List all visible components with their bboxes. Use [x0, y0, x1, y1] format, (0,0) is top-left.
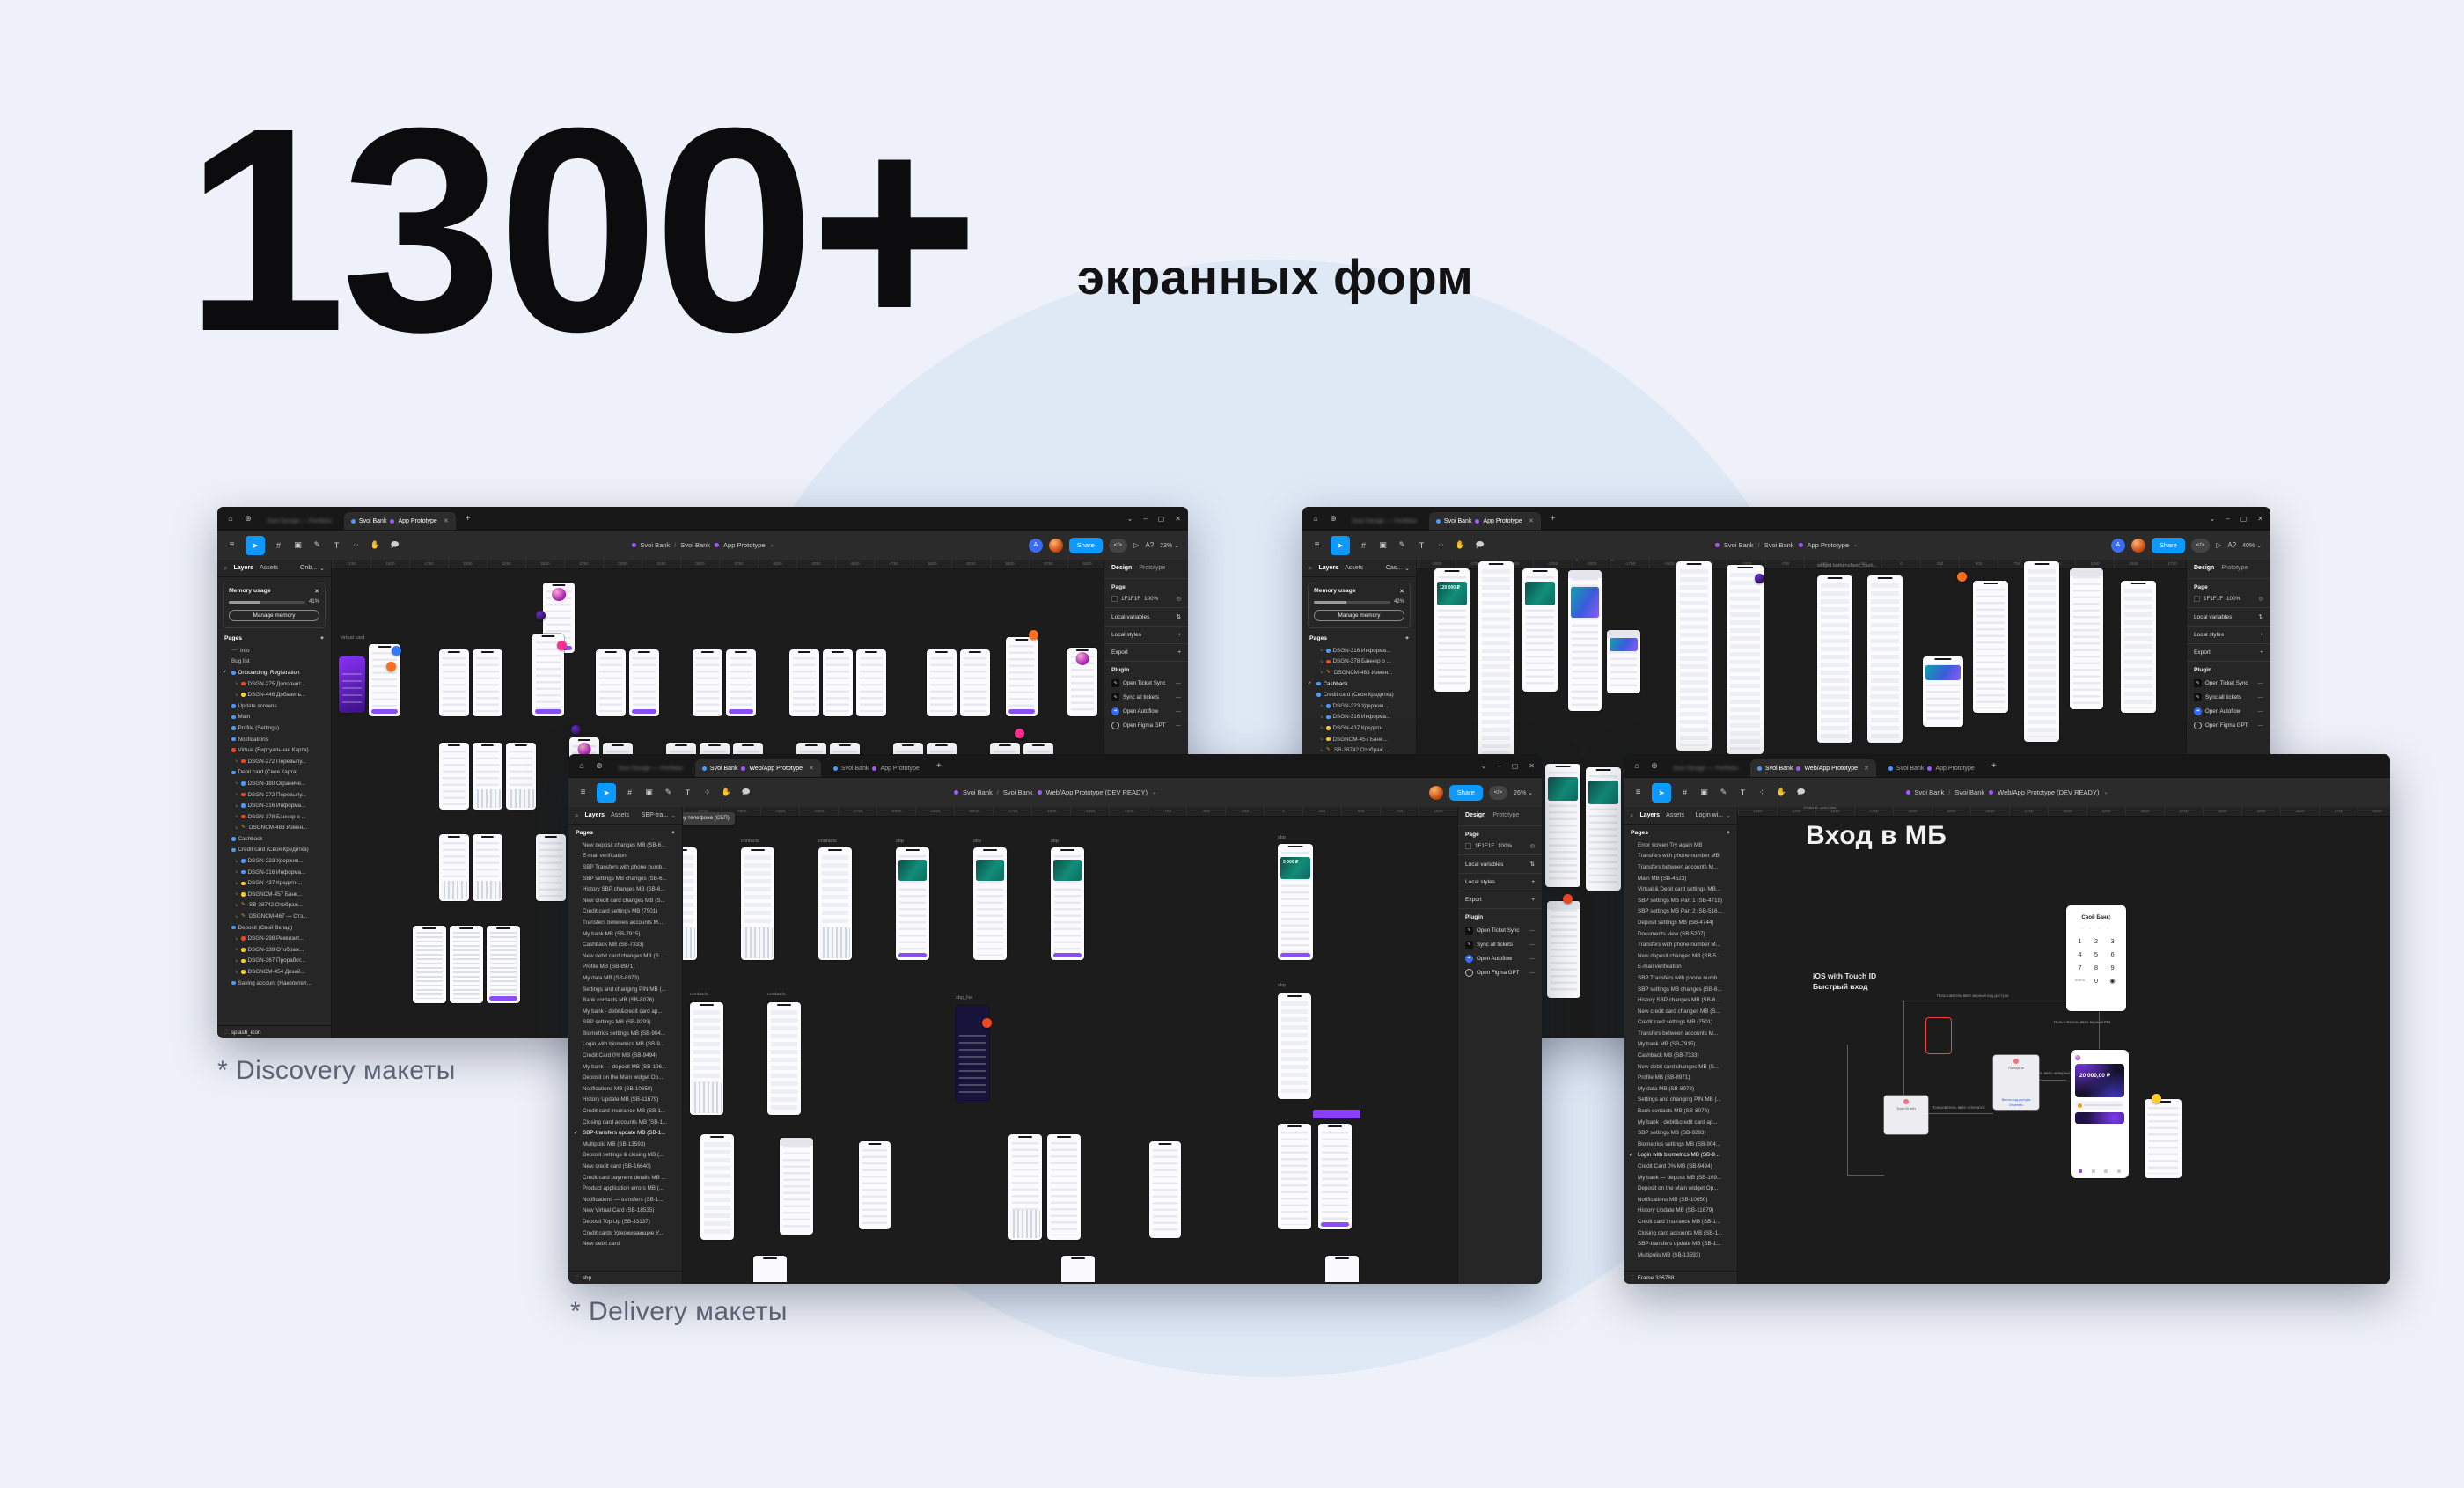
- actions-tool[interactable]: ⁘: [1435, 540, 1447, 550]
- phone-frame[interactable]: [818, 847, 852, 960]
- phone-frame[interactable]: [683, 847, 697, 960]
- plugin-remove-icon[interactable]: —: [2258, 708, 2263, 715]
- page-row[interactable]: Cashback MB (SB-7333): [1624, 1050, 1737, 1061]
- page-row[interactable]: Saving account (Накопител...: [217, 978, 331, 989]
- page-row[interactable]: ↳DSGN-316 Информа...: [217, 800, 331, 811]
- main-screen-phone[interactable]: 20 000,00 ₽: [2071, 1050, 2129, 1178]
- page-row[interactable]: E-mail verification: [1624, 962, 1737, 973]
- pen-tool[interactable]: ✎: [312, 540, 323, 550]
- plugin-remove-icon[interactable]: —: [1529, 956, 1535, 962]
- flow-node-link[interactable]: Отменить: [1996, 1103, 2036, 1107]
- page-row[interactable]: Notifications: [217, 734, 331, 745]
- plugin-remove-icon[interactable]: —: [1529, 927, 1535, 934]
- share-button[interactable]: Share: [2152, 538, 2185, 553]
- page-row[interactable]: Credit card settings MB (7501): [1624, 1017, 1737, 1029]
- phone-frame[interactable]: [1586, 767, 1621, 891]
- phone-frame[interactable]: [1051, 847, 1084, 960]
- search-icon[interactable]: ⌕: [575, 811, 578, 820]
- current-page-chip[interactable]: Cas...⌄: [1386, 565, 1410, 572]
- phone-frame[interactable]: [1568, 570, 1602, 711]
- phone-frame[interactable]: [973, 847, 1007, 960]
- add-page-button[interactable]: +: [671, 830, 675, 836]
- page-row[interactable]: Multipolis MB (SB-13593): [1624, 1250, 1737, 1261]
- tab-file-0[interactable]: Svoi BankApp Prototype✕: [344, 512, 456, 530]
- phone-frame[interactable]: [413, 926, 446, 1003]
- close-button[interactable]: ✕: [1529, 762, 1535, 770]
- maximize-button[interactable]: ▢: [1512, 762, 1519, 770]
- tab-portfolio[interactable]: Svoi Design — Portfolio: [1666, 759, 1745, 777]
- tab-prototype[interactable]: Prototype: [1139, 565, 1165, 571]
- page-row[interactable]: Settings and changing PIN MB (...: [568, 984, 682, 995]
- plus-icon[interactable]: +: [1177, 649, 1181, 656]
- tab-layers[interactable]: Layers: [1639, 812, 1660, 818]
- plugin-row[interactable]: ∿Sync all tickets—: [2194, 693, 2263, 701]
- page-row[interactable]: My bank MB (SB-7915): [1624, 1039, 1737, 1051]
- tab-prototype[interactable]: Prototype: [1492, 812, 1519, 818]
- frame-tool[interactable]: #: [1679, 788, 1690, 797]
- selected-layer-row[interactable]: ⁚⁚Frame 336788: [1624, 1271, 1737, 1284]
- page-row[interactable]: ↳DSGN-316 Информа...: [1302, 712, 1416, 723]
- breadcrumb-file[interactable]: Svoi Bank: [1764, 541, 1794, 549]
- tab-close-icon[interactable]: ✕: [809, 765, 814, 772]
- keypad-key[interactable]: 4: [2072, 950, 2088, 958]
- page-row[interactable]: Credit card insurance MB (SB-1...: [1624, 1216, 1737, 1228]
- tab-layers[interactable]: Layers: [233, 565, 253, 571]
- page-row[interactable]: ↳DSGN-339 Отображ...: [217, 944, 331, 956]
- page-row[interactable]: ↳DSGNCM-454 Дизай...: [217, 966, 331, 978]
- page-row[interactable]: New deposit changes MB (SB-6...: [568, 839, 682, 851]
- page-row[interactable]: Deposit settings MB (SB-4744): [1624, 917, 1737, 928]
- page-row[interactable]: My data MB (SB-8973): [568, 972, 682, 984]
- canvas[interactable]: -3750-3500-3250-3000-2750-2500-2250-2000…: [683, 807, 1457, 1284]
- comment-tool[interactable]: 🗩: [740, 786, 752, 800]
- keypad-key[interactable]: 0: [2088, 977, 2105, 985]
- page-row[interactable]: —Info: [217, 645, 331, 656]
- phone-frame[interactable]: [536, 834, 566, 901]
- page-row[interactable]: Credit card insurance MB (SB-1...: [568, 1105, 682, 1117]
- canvas[interactable]: 1000125015001750200022502500275030003250…: [1738, 807, 2390, 1284]
- dev-mode-toggle[interactable]: </>: [2191, 539, 2210, 553]
- page-row[interactable]: ✓Cashback: [1302, 678, 1416, 690]
- page-row[interactable]: New credit card changes MB (S...: [1624, 1006, 1737, 1017]
- page-row[interactable]: ↳DSGN-316 Информа...: [217, 867, 331, 878]
- plugin-row[interactable]: Open Figma GPT—: [2194, 722, 2263, 729]
- page-color-row[interactable]: 1F1F1F100%◎: [1111, 596, 1181, 602]
- shape-tool[interactable]: ▣: [1377, 540, 1389, 550]
- panel-section-row[interactable]: Local styles+: [1111, 632, 1181, 638]
- close-button[interactable]: ✕: [1175, 515, 1181, 523]
- page-row[interactable]: Transfers between accounts M...: [1624, 861, 1737, 873]
- phone-frame[interactable]: [767, 1002, 801, 1115]
- page-row[interactable]: History SBP changes MB (SB-6...: [1624, 994, 1737, 1006]
- phone-frame[interactable]: [1547, 901, 1580, 998]
- minimize-button[interactable]: –: [2226, 515, 2229, 523]
- zoom-chevron-icon[interactable]: ⌄: [1528, 790, 1533, 796]
- color-swatch[interactable]: [2194, 596, 2200, 602]
- pen-tool[interactable]: ✎: [1397, 540, 1408, 550]
- page-row[interactable]: Deposit on the Main widget Op...: [1624, 1183, 1737, 1194]
- phone-frame[interactable]: [856, 649, 886, 716]
- keypad-key[interactable]: 7: [2072, 964, 2088, 971]
- phone-frame[interactable]: [1008, 1134, 1042, 1240]
- tab-portfolio[interactable]: Svoi Design — Portfolio: [611, 759, 690, 777]
- phone-frame[interactable]: [1607, 630, 1640, 693]
- community-icon[interactable]: ⊕: [242, 514, 254, 524]
- current-page-chip[interactable]: SBP-tra...⌄: [642, 812, 676, 819]
- phone-frame[interactable]: [693, 649, 722, 716]
- phone-frame[interactable]: [473, 649, 502, 716]
- breadcrumb-team[interactable]: Svoi Bank: [640, 541, 670, 549]
- tab-portfolio[interactable]: Svoi Design — Portfolio: [1345, 512, 1424, 530]
- new-tab-button[interactable]: +: [461, 514, 475, 524]
- page-row[interactable]: ↳DSGN-446 Добавить...: [217, 689, 331, 700]
- phone-frame[interactable]: [1478, 561, 1514, 773]
- search-icon[interactable]: ⌕: [224, 564, 227, 573]
- phone-frame[interactable]: [960, 649, 990, 716]
- phone-frame[interactable]: [1325, 1256, 1359, 1282]
- phone-frame[interactable]: [741, 847, 774, 960]
- page-row[interactable]: Multipolis MB (SB-13593): [568, 1139, 682, 1150]
- plugin-row[interactable]: ∿Open Ticket Sync—: [2194, 679, 2263, 687]
- page-row[interactable]: New credit card changes MB (S...: [568, 895, 682, 906]
- collaborator-avatar[interactable]: A: [2111, 539, 2125, 553]
- share-button[interactable]: Share: [1069, 538, 1103, 553]
- home-icon[interactable]: ⌂: [1631, 761, 1643, 770]
- plus-icon[interactable]: +: [1177, 632, 1181, 638]
- keypad-key[interactable]: 2: [2088, 937, 2105, 945]
- present-icon[interactable]: ▷: [2216, 541, 2221, 549]
- page-row[interactable]: SBP settings MB changes (SB-6...: [1624, 984, 1737, 995]
- phone-frame[interactable]: [927, 649, 957, 716]
- page-row[interactable]: Deposit (Свой Вклад): [217, 922, 331, 934]
- new-tab-button[interactable]: +: [932, 761, 946, 771]
- nav-icon[interactable]: [2117, 1169, 2121, 1173]
- zoom-chevron-icon[interactable]: ⌄: [2256, 543, 2262, 549]
- phone-frame[interactable]: [753, 1256, 787, 1282]
- phone-frame[interactable]: [506, 743, 536, 810]
- phone-frame[interactable]: [339, 656, 365, 713]
- tab-file-0[interactable]: Svoi BankWeb/App Prototype✕: [1750, 759, 1876, 777]
- page-row[interactable]: Bank contacts MB (SB-8076): [568, 994, 682, 1006]
- phone-frame[interactable]: [2121, 581, 2156, 713]
- tab-close-icon[interactable]: ✕: [444, 517, 449, 524]
- breadcrumb-file[interactable]: Svoi Bank: [1003, 788, 1033, 796]
- phone-frame[interactable]: [439, 743, 469, 810]
- present-icon[interactable]: ▷: [1133, 541, 1139, 549]
- plugin-row[interactable]: ∿Sync all tickets—: [1465, 941, 1535, 949]
- page-row[interactable]: New credit card (SB-16640): [568, 1161, 682, 1172]
- chevron-down-icon[interactable]: ⌄: [1853, 542, 1858, 548]
- plugin-row[interactable]: ➔Open Autoflow—: [1111, 707, 1181, 715]
- page-row[interactable]: ↳DSGN-275 Дополнит...: [217, 678, 331, 690]
- page-row[interactable]: ↳DSGNCM-457 Бане...: [1302, 734, 1416, 745]
- page-row[interactable]: History Update MB (SB-11679): [568, 1095, 682, 1106]
- phone-frame[interactable]: [1006, 637, 1038, 716]
- plugin-remove-icon[interactable]: —: [1529, 970, 1535, 976]
- page-row[interactable]: My bank — deposit MB (SB-109...: [1624, 1172, 1737, 1184]
- plus-icon[interactable]: +: [2260, 649, 2263, 656]
- tab-design[interactable]: Design: [2194, 565, 2214, 571]
- flow-node[interactable]: ПовторитеВвести код доступаОтменить: [1993, 1055, 2039, 1110]
- phone-frame[interactable]: [1867, 575, 1903, 743]
- minimize-button[interactable]: –: [1143, 515, 1147, 523]
- plugin-remove-icon[interactable]: —: [2258, 694, 2263, 700]
- plugin-remove-icon[interactable]: —: [2258, 722, 2263, 729]
- page-row[interactable]: Cashback MB (SB-7333): [568, 939, 682, 950]
- page-color-row[interactable]: 1F1F1F100%◎: [2194, 596, 2263, 602]
- page-row[interactable]: SBP settings MB (SB-9293): [1624, 1127, 1737, 1139]
- chevron-down-icon[interactable]: ⌄: [2103, 789, 2108, 795]
- phone-frame[interactable]: [780, 1138, 813, 1235]
- page-row[interactable]: SBP settings MB changes (SB-6...: [568, 873, 682, 884]
- phone-frame[interactable]: [629, 649, 659, 716]
- page-row[interactable]: Bug list: [217, 656, 331, 668]
- keypad-key[interactable]: 8: [2088, 964, 2105, 971]
- page-row[interactable]: History Update MB (SB-11679): [1624, 1206, 1737, 1217]
- page-row[interactable]: Debit card (Своя Карта): [217, 767, 331, 779]
- share-button[interactable]: Share: [1449, 785, 1483, 801]
- plugin-row[interactable]: Open Figma GPT—: [1465, 969, 1535, 977]
- zoom-level[interactable]: 40% ⌄: [2242, 542, 2262, 549]
- tab-prototype[interactable]: Prototype: [2221, 565, 2248, 571]
- keypad-key[interactable]: 6: [2104, 950, 2121, 958]
- breadcrumb-team[interactable]: Svoi Bank: [1724, 541, 1754, 549]
- collaborator-avatar[interactable]: A: [1029, 539, 1043, 553]
- page-row[interactable]: Bank contacts MB (SB-8076): [1624, 1105, 1737, 1117]
- plugin-remove-icon[interactable]: —: [1529, 942, 1535, 948]
- page-row[interactable]: SBP Transfers with phone numb...: [1624, 972, 1737, 984]
- keypad-key[interactable]: 9: [2104, 964, 2121, 971]
- tab-assets[interactable]: Assets: [260, 565, 278, 571]
- page-row[interactable]: ↳DSGN-272 Перевыпу...: [217, 789, 331, 801]
- chevron-down-icon[interactable]: ⌄: [1152, 789, 1156, 795]
- phone-frame[interactable]: [1067, 648, 1097, 716]
- flow-node[interactable]: [1926, 1018, 1951, 1053]
- page-row[interactable]: ↳DSGN-378 Баннер о ...: [217, 811, 331, 823]
- actions-tool[interactable]: ⁘: [701, 788, 713, 797]
- page-row[interactable]: ↳DSGN-378 Баннер о ...: [1302, 656, 1416, 668]
- page-row[interactable]: Closing card accounts MB (SB-1...: [568, 1117, 682, 1128]
- comment-tool[interactable]: 🗩: [389, 539, 400, 553]
- phone-frame[interactable]: [2024, 561, 2059, 742]
- phone-frame[interactable]: [1061, 1256, 1095, 1282]
- phone-frame[interactable]: [1278, 993, 1311, 1099]
- tab-close-icon[interactable]: ✕: [1529, 517, 1534, 524]
- main-menu-icon[interactable]: ≡: [226, 540, 238, 550]
- page-row[interactable]: Error screen Try again MB: [1624, 839, 1737, 851]
- keypad-key[interactable]: 5: [2088, 950, 2105, 958]
- page-row[interactable]: ↳DSGNCM-457 Банк...: [217, 889, 331, 900]
- plugin-remove-icon[interactable]: —: [2258, 680, 2263, 686]
- shape-tool[interactable]: ▣: [292, 540, 304, 550]
- page-row[interactable]: Product application errors MB (...: [568, 1183, 682, 1194]
- phone-frame[interactable]: [1522, 568, 1558, 692]
- phone-frame[interactable]: [487, 926, 520, 1003]
- phone-frame[interactable]: [859, 1141, 891, 1229]
- page-row[interactable]: Biometrics settings MB (SB-904...: [568, 1028, 682, 1039]
- page-row[interactable]: ↳DSGN-223 Удержив...: [1302, 700, 1416, 712]
- pin-keypad-screen[interactable]: Свой Банк)· · · ·123456789Выйти0◉: [2066, 905, 2126, 1011]
- phone-frame[interactable]: [596, 649, 626, 716]
- page-row[interactable]: Login with biometrics MB (SB-9...: [568, 1039, 682, 1051]
- dropdown-icon[interactable]: ⌄: [1127, 515, 1133, 523]
- page-row[interactable]: Virtual (Виртуальная Карта): [217, 744, 331, 756]
- page-row[interactable]: ↳✎DSGNCM-483 Измен...: [217, 823, 331, 834]
- main-menu-icon[interactable]: ≡: [577, 788, 589, 797]
- breadcrumb-page[interactable]: App Prototype: [723, 541, 766, 549]
- main-menu-icon[interactable]: ≡: [1632, 788, 1644, 797]
- page-row[interactable]: Biometrics settings MB (SB-904...: [1624, 1139, 1737, 1150]
- phone-frame[interactable]: [1727, 565, 1764, 754]
- pen-tool[interactable]: ✎: [663, 788, 674, 797]
- phone-frame[interactable]: [2145, 1099, 2182, 1178]
- page-row[interactable]: SBP settings MB Part 2 (SB-516...: [1624, 906, 1737, 918]
- plus-icon[interactable]: +: [1531, 897, 1535, 903]
- page-row[interactable]: ✓Onboarding, Registration: [217, 667, 331, 678]
- community-icon[interactable]: ⊕: [1327, 514, 1339, 524]
- page-row[interactable]: Main MB (SB-4523): [1624, 873, 1737, 884]
- flow-node-link[interactable]: Ввести код доступа: [1996, 1098, 2036, 1102]
- maximize-button[interactable]: ▢: [2240, 515, 2248, 523]
- page-row[interactable]: Credit card settings MB (7501): [568, 906, 682, 918]
- hand-tool[interactable]: ✋: [1776, 788, 1787, 797]
- page-row[interactable]: SBP Transfers with phone numb...: [568, 861, 682, 873]
- chevron-down-icon[interactable]: ⌄: [770, 542, 774, 548]
- tab-close-icon[interactable]: ✕: [1864, 765, 1869, 772]
- phone-frame[interactable]: [1817, 575, 1852, 743]
- page-row[interactable]: History SBP changes MB (SB-6...: [568, 883, 682, 895]
- tab-file-1[interactable]: Svoi BankApp Prototype: [1881, 759, 1982, 777]
- page-row[interactable]: SBP-transfers update MB (SB-1...: [1624, 1238, 1737, 1250]
- phone-frame[interactable]: [2070, 568, 2103, 709]
- phone-frame[interactable]: [439, 649, 469, 716]
- new-tab-button[interactable]: +: [1987, 761, 2001, 771]
- page-row[interactable]: Settings and changing PIN MB (...: [1624, 1095, 1737, 1106]
- page-row[interactable]: Deposit Top Up (SB-33137): [568, 1216, 682, 1228]
- page-row[interactable]: Documents view (SB-5207): [1624, 928, 1737, 940]
- shortcuts-icon[interactable]: A?: [2227, 541, 2236, 549]
- plugin-row[interactable]: ➔Open Autoflow—: [2194, 707, 2263, 715]
- phone-frame[interactable]: 120 000 ₽: [1434, 568, 1470, 692]
- tab-design[interactable]: Design: [1465, 812, 1485, 818]
- hand-tool[interactable]: ✋: [721, 788, 732, 797]
- close-button[interactable]: ✕: [2257, 515, 2263, 523]
- page-row[interactable]: My bank MB (SB-7915): [568, 928, 682, 940]
- page-row[interactable]: Credit card (Своя Кредитка): [217, 845, 331, 856]
- tab-assets[interactable]: Assets: [1345, 565, 1363, 571]
- plugin-row[interactable]: ∿Open Ticket Sync—: [1465, 927, 1535, 935]
- page-row[interactable]: New debit card changes MB (S...: [568, 950, 682, 962]
- page-row[interactable]: My bank - debit&credit card ap...: [568, 1006, 682, 1017]
- page-row[interactable]: SBP settings MB Part 1 (SB-4719): [1624, 895, 1737, 906]
- move-tool[interactable]: ➤: [1331, 536, 1350, 555]
- phone-frame[interactable]: [896, 847, 929, 960]
- plugin-remove-icon[interactable]: —: [1176, 680, 1181, 686]
- breadcrumb-file[interactable]: Svoi Bank: [680, 541, 710, 549]
- panel-section-row[interactable]: Local variables⇅: [1465, 861, 1535, 868]
- text-tool[interactable]: T: [1737, 788, 1749, 797]
- page-row[interactable]: Main: [217, 712, 331, 723]
- community-icon[interactable]: ⊕: [1648, 761, 1661, 771]
- shortcuts-icon[interactable]: A?: [1145, 541, 1154, 549]
- plugin-remove-icon[interactable]: —: [1176, 722, 1181, 729]
- eye-icon[interactable]: ◎: [2259, 596, 2264, 602]
- panel-section-row[interactable]: Local styles+: [2194, 632, 2263, 638]
- page-row[interactable]: New debit card changes MB (S...: [1624, 1061, 1737, 1073]
- add-page-button[interactable]: +: [1727, 830, 1730, 836]
- close-icon[interactable]: ✕: [314, 588, 319, 595]
- panel-section-row[interactable]: Local styles+: [1465, 879, 1535, 885]
- page-row[interactable]: ✓SBP-transfers update MB (SB-1...: [568, 1127, 682, 1139]
- page-row[interactable]: Closing card accounts MB (SB-1...: [1624, 1228, 1737, 1239]
- plugin-row[interactable]: Open Figma GPT—: [1111, 722, 1181, 729]
- dev-mode-toggle[interactable]: </>: [1489, 786, 1507, 800]
- plus-icon[interactable]: +: [2260, 632, 2263, 638]
- current-page-chip[interactable]: Onb...⌄: [300, 565, 325, 572]
- panel-section-row[interactable]: Export+: [1465, 897, 1535, 903]
- page-row[interactable]: Credit card payment details MB ...: [568, 1172, 682, 1184]
- filter-icon[interactable]: ⇅: [2259, 613, 2263, 620]
- minimize-button[interactable]: –: [1497, 762, 1500, 770]
- tab-layers[interactable]: Layers: [584, 812, 605, 818]
- tab-portfolio[interactable]: Svoi Design — Portfolio: [260, 512, 339, 530]
- shape-tool[interactable]: ▣: [1698, 788, 1710, 797]
- shape-tool[interactable]: ▣: [643, 788, 655, 797]
- user-avatar[interactable]: [1429, 786, 1443, 800]
- phone-frame[interactable]: [473, 834, 502, 901]
- user-avatar[interactable]: [2131, 539, 2145, 553]
- panel-section-row[interactable]: Local variables⇅: [2194, 613, 2263, 620]
- keypad-key[interactable]: Выйти: [2072, 977, 2088, 985]
- page-row[interactable]: Deposit settings & closing MB (...: [568, 1150, 682, 1162]
- page-row[interactable]: Profile (Settings): [217, 722, 331, 734]
- phone-frame[interactable]: [473, 743, 502, 810]
- dropdown-icon[interactable]: ⌄: [1481, 762, 1487, 770]
- plugin-row[interactable]: ➔Open Autoflow—: [1465, 955, 1535, 963]
- page-row[interactable]: Virtual & Debit card settings MB...: [1624, 883, 1737, 895]
- move-tool[interactable]: ➤: [1652, 783, 1671, 803]
- actions-tool[interactable]: ⁘: [350, 540, 362, 550]
- page-row[interactable]: New Virtual Card (SB-18535): [568, 1206, 682, 1217]
- page-row[interactable]: Notifications MB (SB-10650): [1624, 1194, 1737, 1206]
- frame-tool[interactable]: #: [624, 788, 635, 797]
- move-tool[interactable]: ➤: [597, 783, 616, 803]
- selected-layer-row[interactable]: ⁚⁚splash_icon: [217, 1025, 331, 1038]
- page-row[interactable]: ↳DSGN-223 Удержив...: [217, 855, 331, 867]
- page-row[interactable]: ↳DSGN-437 Кредитн...: [1302, 722, 1416, 734]
- breadcrumb-team[interactable]: Svoi Bank: [963, 788, 993, 796]
- text-tool[interactable]: T: [1416, 541, 1427, 550]
- zoom-level[interactable]: 23% ⌄: [1160, 542, 1179, 549]
- nav-icon[interactable]: [2079, 1169, 2082, 1173]
- page-row[interactable]: Notifications MB (SB-10650): [568, 1083, 682, 1095]
- text-tool[interactable]: T: [331, 541, 342, 550]
- tab-file-0[interactable]: Svoi BankWeb/App Prototype✕: [695, 759, 821, 777]
- filter-icon[interactable]: ⇅: [1177, 613, 1181, 620]
- close-icon[interactable]: ✕: [1399, 588, 1404, 595]
- page-row[interactable]: ↳✎DSGNCM-483 Измен...: [1302, 667, 1416, 678]
- phone-frame[interactable]: [439, 834, 469, 901]
- eye-icon[interactable]: ◎: [1530, 843, 1536, 849]
- page-row[interactable]: ↳DSGN-316 Информа...: [1302, 645, 1416, 656]
- breadcrumb-team[interactable]: Svoi Bank: [1914, 788, 1944, 796]
- home-icon[interactable]: ⌂: [1309, 514, 1322, 523]
- manage-memory-button[interactable]: Manage memory: [229, 610, 319, 621]
- breadcrumb-page[interactable]: Web/App Prototype (DEV READY): [1998, 788, 2099, 796]
- page-row[interactable]: Deposit on the Main widget Op...: [568, 1072, 682, 1083]
- community-icon[interactable]: ⊕: [593, 761, 605, 771]
- home-icon[interactable]: ⌂: [576, 761, 588, 770]
